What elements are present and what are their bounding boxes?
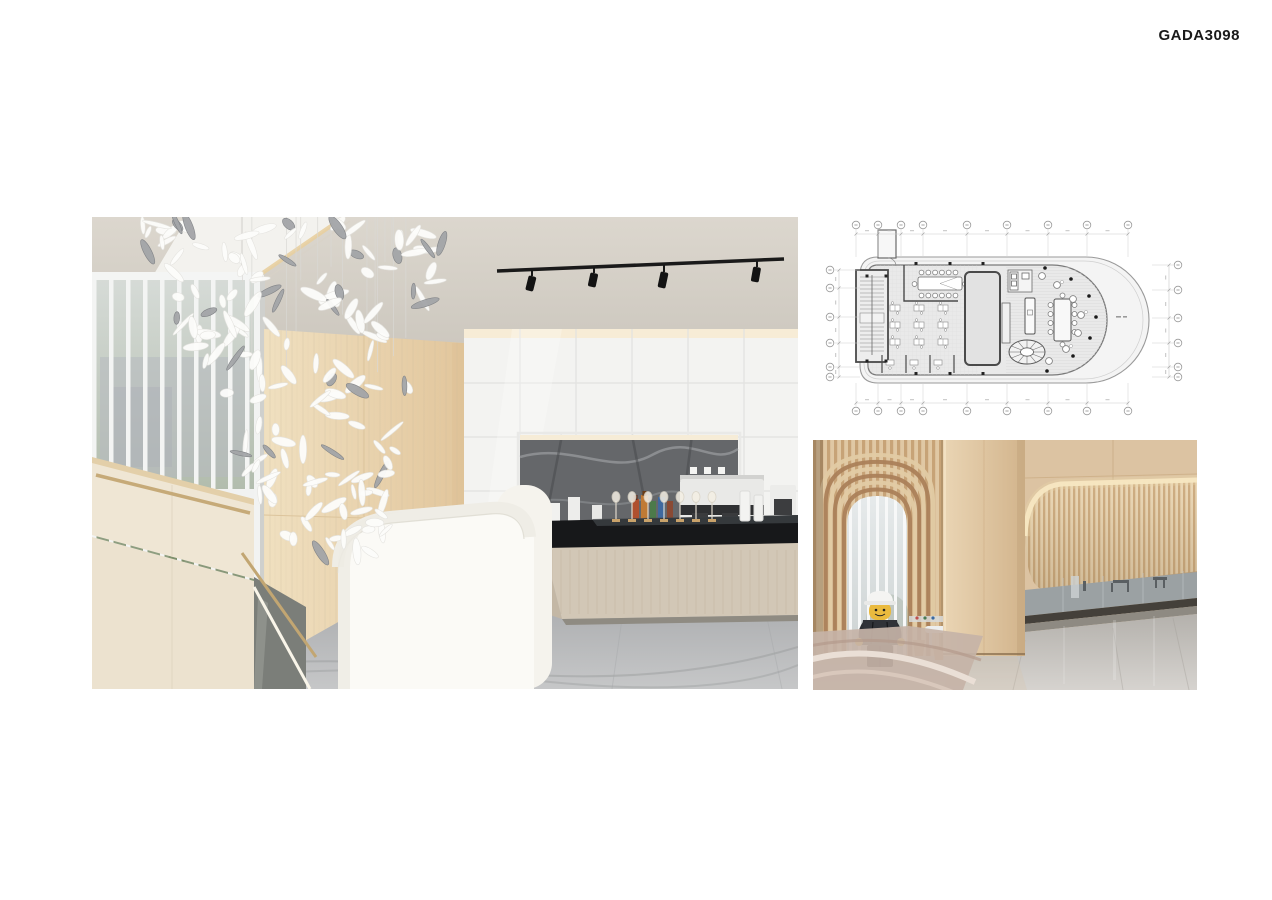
niche-light xyxy=(520,435,738,440)
floor-plan xyxy=(820,215,1205,420)
main-interior-photo xyxy=(92,217,798,689)
project-code: GADA3098 xyxy=(1158,27,1240,44)
core-shaft xyxy=(965,272,1000,365)
main-staircase xyxy=(856,270,888,362)
spiral-stair xyxy=(1009,340,1045,364)
presentation-board: GADA3098 xyxy=(0,0,1272,900)
lobby-interior-photo xyxy=(813,440,1197,690)
office-desks xyxy=(890,302,948,349)
island-wood-base xyxy=(544,542,798,619)
plan-kitchen-island xyxy=(1025,298,1035,334)
backlit-slat-band xyxy=(1025,480,1197,590)
pink-marble-swirl xyxy=(813,626,983,690)
